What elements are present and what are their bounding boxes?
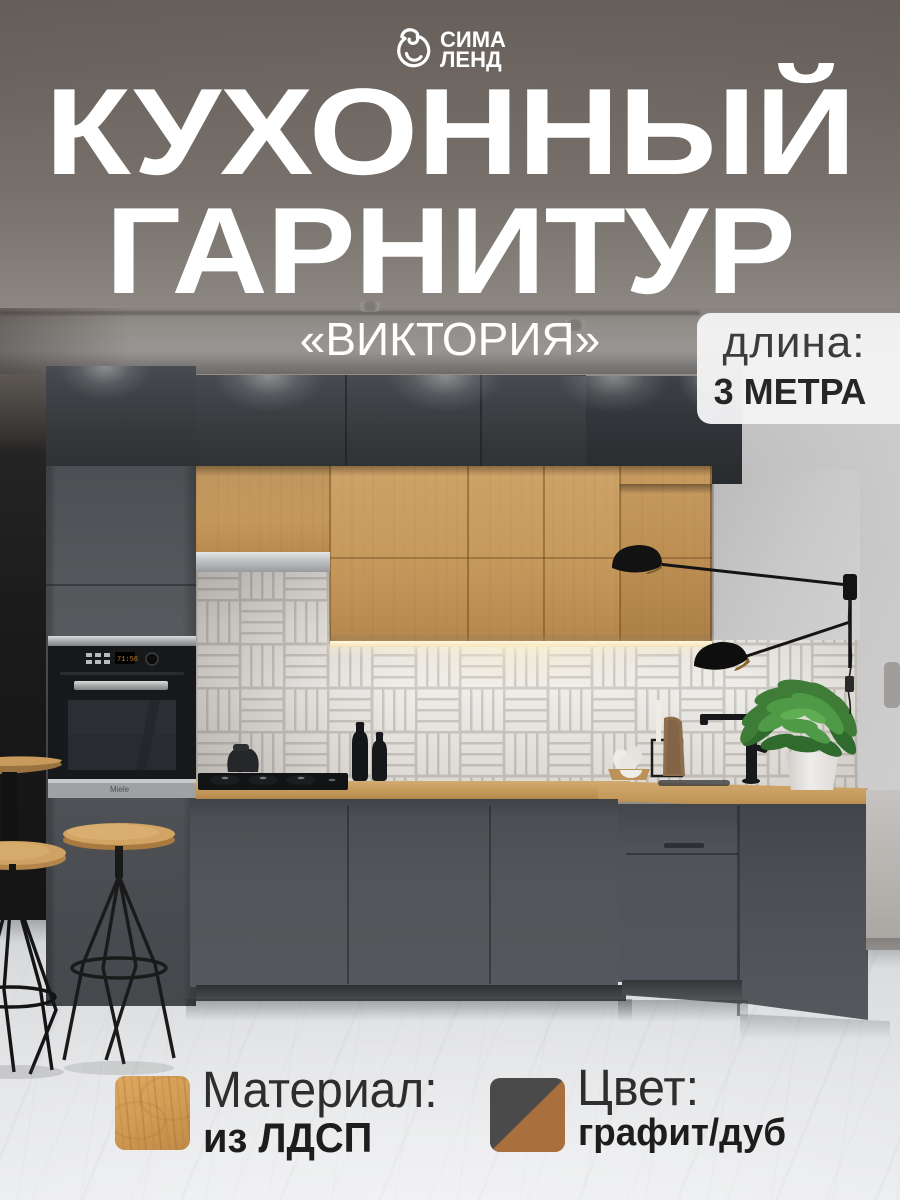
svg-text:71:56: 71:56 xyxy=(117,656,138,664)
svg-text:Miele: Miele xyxy=(110,785,130,794)
